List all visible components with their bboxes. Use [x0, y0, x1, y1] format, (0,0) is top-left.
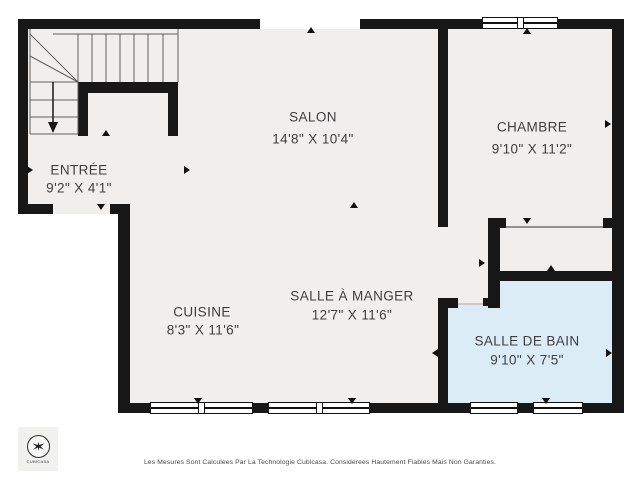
door-marker — [479, 259, 485, 267]
door-marker — [102, 130, 110, 136]
wall-bottom-2 — [253, 403, 268, 413]
room-label-chambre: CHAMBRE — [497, 120, 567, 135]
door-marker — [27, 166, 33, 174]
wall-bath-north — [488, 271, 612, 281]
room-dims-salle-a-manger: 12'7" X 11'6" — [312, 308, 393, 323]
stairs-down-arrow — [48, 122, 58, 133]
window-chambre-north — [482, 17, 558, 29]
window-pane — [471, 403, 517, 413]
wall-bottom-4 — [518, 403, 533, 413]
window-mullion — [316, 403, 323, 413]
wall-bottom-1 — [118, 403, 150, 413]
window-pane — [269, 403, 316, 413]
window-pane — [205, 403, 252, 413]
door-marker — [523, 28, 531, 34]
window-pane — [323, 403, 370, 413]
wall-salon-chambre — [438, 29, 448, 227]
cubicasa-logo-circle — [27, 435, 50, 458]
door-marker — [606, 349, 612, 357]
wall-bottom-5 — [583, 403, 624, 413]
room-label-salon: SALON — [289, 110, 337, 125]
door-marker — [523, 218, 531, 224]
room-dims-cuisine: 8'3" X 11'6" — [167, 323, 240, 338]
staircase — [28, 29, 180, 136]
room-dims-salon: 14'8" X 10'4" — [272, 132, 354, 147]
window-pane — [151, 403, 198, 413]
door-marker — [605, 120, 611, 128]
window-pane — [483, 18, 517, 28]
window-bath-south-1 — [470, 402, 518, 414]
room-label-cuisine: CUISINE — [173, 305, 231, 320]
room-dims-salle-de-bain: 9'10" X 7'5" — [490, 353, 564, 368]
door-marker — [547, 265, 555, 271]
bathroom-door-threshold — [458, 303, 483, 305]
moth-icon — [32, 442, 45, 451]
disclaimer-text: Les Mesures Sont Calculees Par La Techno… — [0, 459, 640, 466]
door-marker — [348, 398, 356, 404]
room-dims-chambre: 9'10" X 11'2" — [492, 142, 573, 157]
wall-closet — [488, 218, 500, 308]
wall-bath-west — [438, 298, 448, 413]
door-marker — [194, 398, 202, 404]
room-divider-line — [506, 226, 603, 228]
window-mullion — [517, 18, 524, 28]
wall-entree-bottom — [18, 204, 53, 214]
wall-bath-west-cap — [438, 298, 458, 308]
window-pane — [524, 18, 558, 28]
wall-right — [612, 19, 624, 413]
door-marker — [307, 27, 315, 33]
window-bath-south-2 — [533, 402, 583, 414]
door-marker — [350, 202, 358, 208]
wall-closet-foot — [483, 298, 500, 306]
room-label-salle-a-manger: SALLE À MANGER — [290, 289, 413, 304]
window-mullion — [198, 403, 205, 413]
window-pane — [534, 403, 582, 413]
wall-bottom-3 — [370, 403, 470, 413]
room-label-salle-de-bain: SALLE DE BAIN — [475, 334, 580, 349]
wall-top-left — [18, 19, 260, 29]
wall-left — [18, 19, 28, 214]
door-marker — [97, 204, 105, 210]
wall-chambre-south-stub-right — [603, 218, 612, 228]
door-marker — [542, 398, 550, 404]
door-marker — [432, 349, 438, 357]
floor-plan: ENTRÉE 9'2" X 4'1" SALON 14'8" X 10'4" C… — [0, 0, 640, 480]
door-marker — [184, 166, 190, 174]
room-label-entree: ENTRÉE — [50, 163, 107, 178]
wall-kitchen-west — [118, 204, 130, 413]
room-dims-entree: 9'2" X 4'1" — [46, 181, 112, 196]
